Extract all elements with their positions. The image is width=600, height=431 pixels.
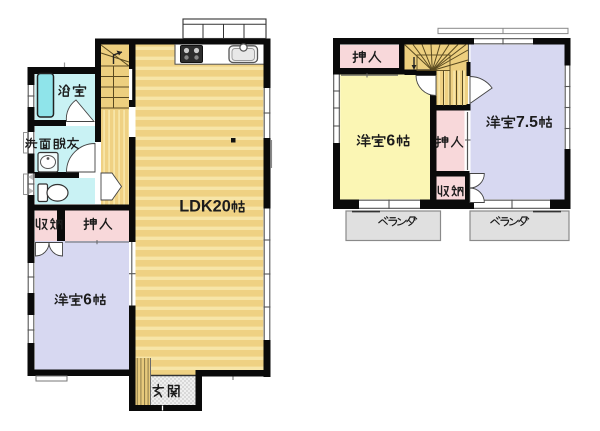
svg-text:6: 6 — [386, 133, 395, 150]
svg-text:7.5: 7.5 — [516, 114, 538, 131]
svg-text:LDK20: LDK20 — [179, 198, 231, 216]
svg-text:6: 6 — [83, 291, 92, 308]
